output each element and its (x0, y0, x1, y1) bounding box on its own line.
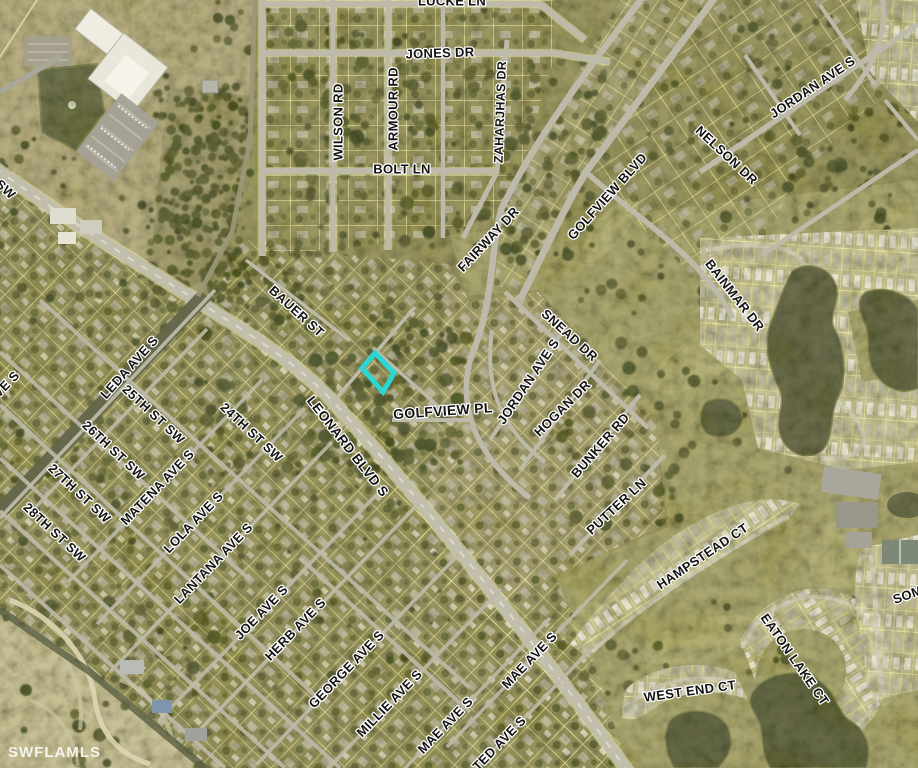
svg-text:BOLT LN: BOLT LN (373, 161, 430, 176)
svg-text:ARMOUR RD: ARMOUR RD (385, 67, 400, 151)
svg-text:SWFLAMLS: SWFLAMLS (8, 744, 101, 761)
svg-text:WILSON RD: WILSON RD (330, 83, 345, 160)
svg-text:JONES DR: JONES DR (405, 44, 475, 61)
svg-text:LUCKE LN: LUCKE LN (418, 0, 486, 8)
